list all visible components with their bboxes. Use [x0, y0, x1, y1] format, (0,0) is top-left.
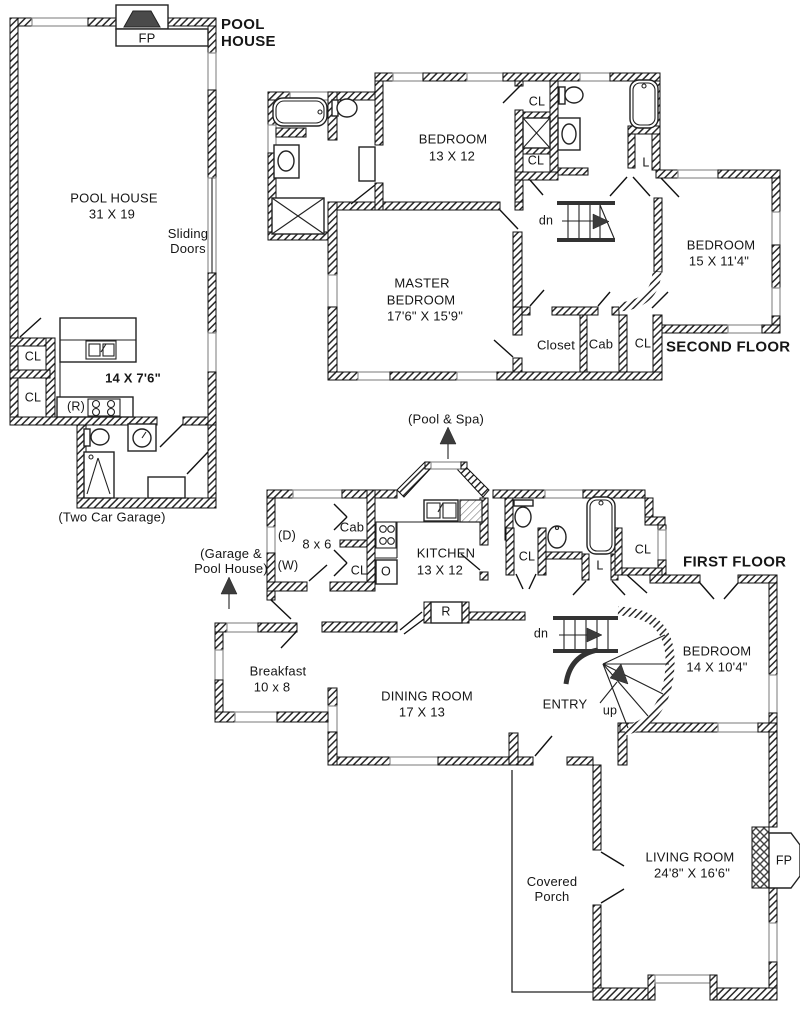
bedroom1-name-label: BEDROOM — [419, 132, 488, 147]
second-floor-stairs-down-icon — [557, 203, 615, 240]
kitchen-name-label: KITCHEN — [417, 546, 475, 561]
linen-2f-label: L — [642, 156, 649, 171]
entry-label: ENTRY — [543, 697, 588, 712]
range-label: (R) — [67, 400, 85, 415]
oven-label: O — [381, 565, 391, 580]
two-car-garage-label: (Two Car Garage) — [58, 510, 165, 525]
first-floor-bathtub-icon — [587, 497, 615, 554]
sliding-doors-label: Sliding Doors — [168, 226, 208, 256]
kitchen-range-icon — [376, 522, 396, 548]
living-fp-label: FP — [776, 854, 792, 869]
powder-sink-icon — [548, 526, 566, 548]
refrigerator-label: R — [441, 605, 450, 620]
kitchen-size-label: 13 X 12 — [417, 563, 463, 578]
pool-closet2-label: CL — [25, 391, 41, 406]
closet-mid-label: CL — [528, 154, 544, 169]
cab-1f-label: Cab — [340, 520, 364, 535]
laundry-size-label: 8 x 6 — [302, 537, 331, 552]
second-floor-hall-sink-icon — [558, 118, 580, 150]
closet-row-cab-label: Cab — [589, 337, 613, 352]
washer-label: (W) — [278, 559, 299, 574]
direction-arrow-pool-spa — [440, 427, 456, 459]
living-size-label: 24'8" X 16'6" — [654, 866, 730, 881]
covered-porch-label: Covered Porch — [527, 874, 578, 904]
stairs-down-1f-label: dn — [534, 627, 548, 642]
second-floor-toilet-icon — [332, 99, 357, 117]
master-size-label: 17'6" X 15'9" — [387, 309, 463, 324]
closet-top-label: CL — [529, 95, 545, 110]
linen-1f-label: L — [596, 559, 603, 574]
bedroom-1f-name-label: BEDROOM — [683, 644, 752, 659]
pool-house-title: POOL HOUSE — [221, 16, 276, 50]
pool-house-fp-label: FP — [138, 31, 155, 46]
floor-plan-page: POOL HOUSE FP POOL HOUSE 31 X 19 Sliding… — [0, 0, 800, 1010]
first-floor-walls — [215, 462, 777, 1000]
bedroom2-size-label: 15 X 11'4" — [689, 254, 749, 269]
pool-house-toilet-icon — [84, 429, 109, 446]
stairs-down-2f-label: dn — [539, 214, 553, 229]
pool-house-size-label: 31 X 19 — [89, 207, 135, 222]
bedroom-1f-size-label: 14 X 10'4" — [686, 660, 747, 675]
second-floor-shower-icon — [272, 198, 324, 234]
garage-pool-house-label: (Garage & Pool House) — [194, 546, 268, 576]
second-floor-vanity-sink-icon — [274, 145, 299, 178]
powder-toilet-icon — [514, 500, 533, 527]
second-floor-linen-xbox — [523, 118, 550, 148]
pool-house-walls — [10, 18, 216, 508]
breakfast-name-label: Breakfast — [250, 664, 307, 679]
breakfast-size-label: 10 x 8 — [254, 680, 291, 695]
master-line2-label: BEDROOM — [387, 293, 456, 308]
second-floor-title: SECOND FLOOR — [666, 339, 790, 356]
laundry-closet-label: CL — [351, 564, 367, 579]
first-floor-title: FIRST FLOOR — [683, 554, 786, 571]
living-name-label: LIVING ROOM — [646, 850, 735, 865]
closet-row-cl-label: CL — [635, 337, 651, 352]
bedroom1-size-label: 13 X 12 — [429, 149, 475, 164]
second-floor-bathtub-icon — [273, 98, 327, 126]
dishwasher-icon — [460, 500, 482, 522]
bedroom-closet-label: CL — [635, 543, 651, 558]
pool-spa-label: (Pool & Spa) — [408, 412, 484, 427]
pool-closet1-label: CL — [25, 350, 41, 365]
dryer-label: (D) — [278, 529, 296, 544]
bedroom2-name-label: BEDROOM — [687, 238, 756, 253]
pool-house-bench — [148, 477, 185, 498]
second-floor-hall-toilet-icon — [559, 87, 583, 104]
dining-name-label: DINING ROOM — [381, 689, 473, 704]
pool-house-room-label: POOL HOUSE — [70, 191, 157, 206]
pool-house-shower-icon — [84, 452, 114, 498]
stairs-up-label: up — [603, 704, 617, 719]
powder-closet-label: CL — [519, 550, 535, 565]
closet-row-closet-label: Closet — [537, 338, 575, 353]
kitchen-sink-icon — [424, 500, 458, 521]
first-floor-stairs-down-icon — [553, 618, 618, 651]
second-floor-hall-bathtub-icon — [630, 80, 658, 128]
pool-house-sink-icon — [128, 424, 156, 451]
dining-size-label: 17 X 13 — [399, 705, 445, 720]
kitchenette-size-label: 14 X 7'6" — [105, 371, 161, 386]
direction-arrow-garage — [221, 577, 237, 609]
master-line1-label: MASTER — [394, 276, 449, 291]
